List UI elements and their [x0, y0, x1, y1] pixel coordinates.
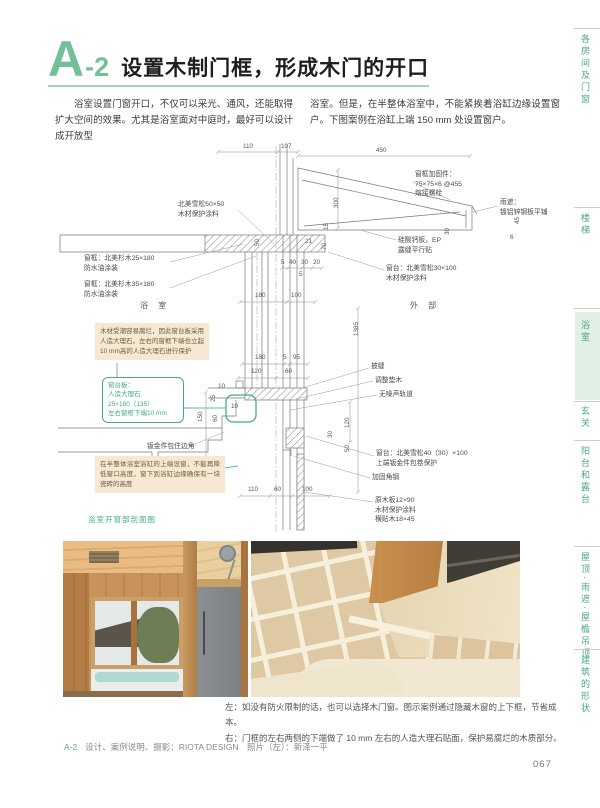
- sidebar-rule: [574, 207, 600, 208]
- floor-edge: [63, 691, 185, 697]
- label-window-frame-35: 窗框：北美杉木35×180 防水油涂装: [84, 280, 154, 299]
- sidebar-rule: [574, 28, 600, 29]
- dim-label: 5: [283, 354, 287, 361]
- dim-label: 180: [255, 292, 266, 299]
- dim-label: 95: [293, 354, 300, 361]
- section-detail-drawing: 浴 室 外 部 北美雪松50×50 木材保护涂料 窗框：北美杉木25×180 防…: [40, 140, 570, 538]
- dim-label: 21: [305, 238, 312, 245]
- dim-label: 50: [344, 445, 351, 452]
- label-sheet-metal-corner: 钣金件包住边角: [147, 442, 195, 452]
- sidebar-rule: [574, 546, 600, 547]
- wood-edge-right: [241, 541, 248, 697]
- sidebar-tab-roof-eaves: 屋顶·雨遮·屋檐吊顶: [580, 552, 589, 660]
- dim-label: 15: [323, 223, 330, 230]
- dim-label: 10: [218, 383, 225, 390]
- dim-label: 150: [197, 411, 204, 422]
- dim-label: 70: [321, 243, 328, 250]
- dim-label: 120: [344, 417, 351, 428]
- dim-label: 450: [376, 147, 387, 154]
- photo-bathtub-tile-detail: [251, 541, 520, 697]
- dim-label: 30: [327, 431, 334, 438]
- intro-paragraph-left: 浴室设置门窗开口，不仅可以采光、通风，还能取得扩大空间的效果。尤其是浴室面对中庭…: [55, 97, 293, 145]
- door-top-rail: [197, 579, 241, 587]
- dim-label: 100: [302, 486, 313, 493]
- dim-label: 180: [255, 354, 266, 361]
- dim-label-highlighted: 10: [231, 403, 238, 410]
- sidebar-tab-rooms-doors-windows: 各房间及门窗: [580, 34, 589, 106]
- sidebar-rule: [574, 401, 600, 402]
- dim-label: 60: [285, 368, 292, 375]
- label-rain-shield: 雨遮： 镀铝锌钢板平铺: [500, 198, 548, 217]
- dim-label: 110: [243, 143, 253, 150]
- note-sill-board: 窗台板： 人造大理石 25×180（135） 左右窗框下端10 mm: [102, 377, 184, 423]
- photo-caption: 左：如没有防火限制的话，也可以选择木门窗。图示案例通过隐藏木窗的上下框，节省成本…: [225, 700, 570, 746]
- door-frame-post: [183, 541, 197, 697]
- photo-caption-left: 左：如没有防火限制的话，也可以选择木门窗。图示案例通过隐藏木窗的上下框，节省成本…: [225, 700, 570, 731]
- dim-label: 60: [212, 415, 219, 422]
- dim-label: 6: [510, 234, 514, 241]
- dim-label: 50: [254, 239, 261, 246]
- note-tub-window-height: 在半整体浴室浴缸的上端设窗，不能再降低窗口高度，窗下到浴缸边缘确保有一块瓷砖的高…: [95, 456, 225, 493]
- tree: [137, 607, 179, 663]
- photo-bathroom-interior: [63, 541, 248, 697]
- door-handle: [203, 611, 205, 655]
- note-moisture-protection: 木材受潮容易腐烂，因此窗台板采用人造大理石，左右的窗框下端也立起10 mm高的人…: [95, 323, 209, 360]
- label-cedar-50: 北美雪松50×50 木材保护涂料: [178, 200, 224, 219]
- label-angle-steel: 加固角钢: [372, 473, 399, 483]
- dim-label: 5: [281, 259, 285, 266]
- dim-label: 40: [289, 259, 296, 266]
- dim-label: 30: [301, 259, 308, 266]
- dim-label: 107: [281, 143, 292, 150]
- section-badge-number: -2: [85, 54, 109, 81]
- shower-head: [221, 547, 234, 560]
- page-title: 设置木制门框，形成木门的开口: [121, 57, 429, 80]
- label-frame-reinforcement: 窗框加固件： 75×75×6 @455 熔接螺栓: [415, 170, 462, 199]
- page-number: 067: [533, 759, 552, 770]
- dim-label: 25: [210, 395, 217, 402]
- sidebar-tab-entrance: 玄关: [580, 406, 589, 430]
- label-calcium-silicate-board: 硅酸钙板，EP 露缝平行贴: [398, 236, 441, 255]
- dim-label: 30: [444, 228, 451, 235]
- label-sill-30: 窗台：北美雪松30×100 木材保护涂料: [386, 264, 456, 283]
- sidebar-tab-balcony-terrace: 阳台和露台: [580, 446, 589, 506]
- sidebar-rule: [574, 649, 600, 650]
- sidebar-tab-bathroom-active: 浴室: [580, 320, 589, 344]
- dim-label: 60: [274, 486, 281, 493]
- dim-label: 5: [299, 271, 303, 278]
- label-adjust-pad: 调整垫木: [375, 376, 402, 386]
- window-to-courtyard: [91, 597, 183, 669]
- dim-label: 110: [248, 486, 258, 493]
- wood-wall-left: [63, 573, 89, 697]
- dim-label: 45: [514, 217, 521, 224]
- dim-label: 120: [251, 368, 262, 375]
- dim-label: 1385: [353, 322, 360, 336]
- sidebar-tab-building-shape: 建筑的形状: [580, 655, 589, 715]
- credit-section-id: A-2: [64, 742, 77, 752]
- sidebar-tab-stairs: 楼梯: [580, 213, 589, 237]
- label-sill-40: 窗台：北美雪松40（30）×100 上端钣金件包卷保护: [376, 449, 468, 468]
- sidebar-rule: [574, 440, 600, 441]
- sliding-door-panel: [197, 587, 241, 697]
- figure-caption: 浴室开窗部剖面图: [88, 514, 156, 525]
- room-label-bath: 浴 室: [140, 300, 170, 311]
- dim-label: 100: [291, 292, 302, 299]
- label-silent-rail: 无噪声轨道: [379, 390, 413, 400]
- page-header: A -2 设置木制门框，形成木门的开口: [48, 38, 429, 87]
- dim-label: 20: [313, 259, 320, 266]
- intro-paragraph-right: 浴室。但是，在半整体浴室中，不能紧挨着浴缸边缘设置窗户。下图案例在浴缸上端 15…: [310, 97, 560, 129]
- room-label-exterior: 外 部: [410, 300, 440, 311]
- section-badge-letter: A: [48, 38, 84, 81]
- credit-text: 设计、案例说明、摄影：RIOTA DESIGN 照片（左）：新泽一平: [85, 742, 328, 752]
- label-flashing: 披缝: [371, 362, 385, 372]
- credit-line: A-2设计、案例说明、摄影：RIOTA DESIGN 照片（左）：新泽一平: [64, 741, 328, 753]
- sidebar-rule: [574, 308, 600, 309]
- dim-label: 300: [333, 197, 340, 208]
- label-window-frame-25: 窗框：北美杉木25×180 防水油涂装: [84, 254, 154, 273]
- window-post: [131, 601, 137, 665]
- label-wood-board-12: 原木板12×90 木材保护涂料 横贴木18×45: [375, 496, 416, 525]
- ceiling-vent: [89, 551, 119, 563]
- book-page: { "accent": {"green":"#4fae85","light_gr…: [0, 0, 600, 808]
- bath-water: [95, 672, 179, 682]
